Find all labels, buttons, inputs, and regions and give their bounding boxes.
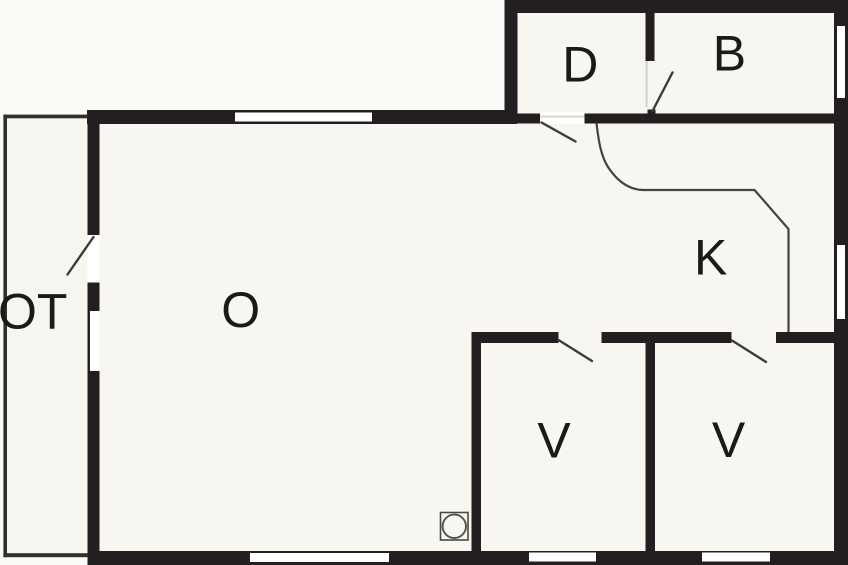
svg-text:O: O [221,282,260,338]
svg-text:OT: OT [0,284,67,340]
svg-text:D: D [562,37,598,93]
svg-text:V: V [712,412,746,468]
svg-text:V: V [537,413,571,469]
svg-text:K: K [694,230,727,286]
svg-text:B: B [713,25,746,81]
